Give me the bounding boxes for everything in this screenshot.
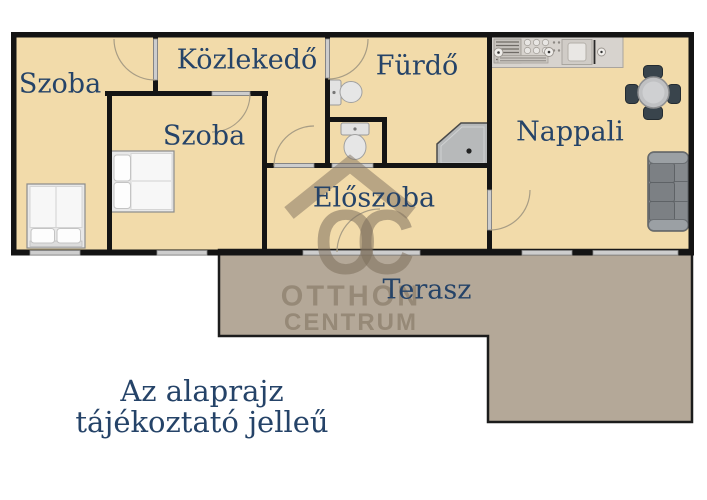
floorplan-canvas: OC OTTHON CENTRUM Szoba Közlekedő Fürdő … <box>0 0 707 500</box>
door-opening-szoba1 <box>154 39 158 80</box>
wall-wc-top <box>330 117 387 122</box>
door-opening-furdo <box>326 39 330 78</box>
room-label-nappali: Nappali <box>516 117 624 148</box>
double-bed-icon <box>27 184 85 248</box>
wall-szoba2-left <box>107 96 112 250</box>
window-szoba1 <box>30 251 80 256</box>
room-label-eloszoba: Előszoba <box>313 183 435 214</box>
room-label-szoba-2: Szoba <box>163 121 245 152</box>
window-szoba2 <box>157 251 207 256</box>
sofa-icon <box>648 152 689 231</box>
disclaimer-line-2: tájékoztató jelleű <box>75 405 328 439</box>
room-label-terasz: Terasz <box>383 275 472 306</box>
door-opening-nappali <box>488 190 492 230</box>
wall-left <box>11 32 17 256</box>
door-opening-szoba2 <box>212 92 250 96</box>
window-nappali-2 <box>593 251 678 256</box>
room-label-furdo: Fürdő <box>376 51 459 82</box>
room-label-kozlekedo: Közlekedő <box>177 45 317 76</box>
wall-top <box>11 32 694 38</box>
disclaimer-line-1: Az alaprajz <box>120 374 283 408</box>
watermark-name-line2: CENTRUM <box>284 309 418 337</box>
double-bed-icon <box>111 151 174 212</box>
window-nappali-1 <box>522 251 572 256</box>
wall-szoba2-right <box>262 96 267 250</box>
wall-right <box>689 32 695 256</box>
room-label-szoba-1: Szoba <box>19 69 101 100</box>
kitchen-counter-icon <box>491 33 623 68</box>
